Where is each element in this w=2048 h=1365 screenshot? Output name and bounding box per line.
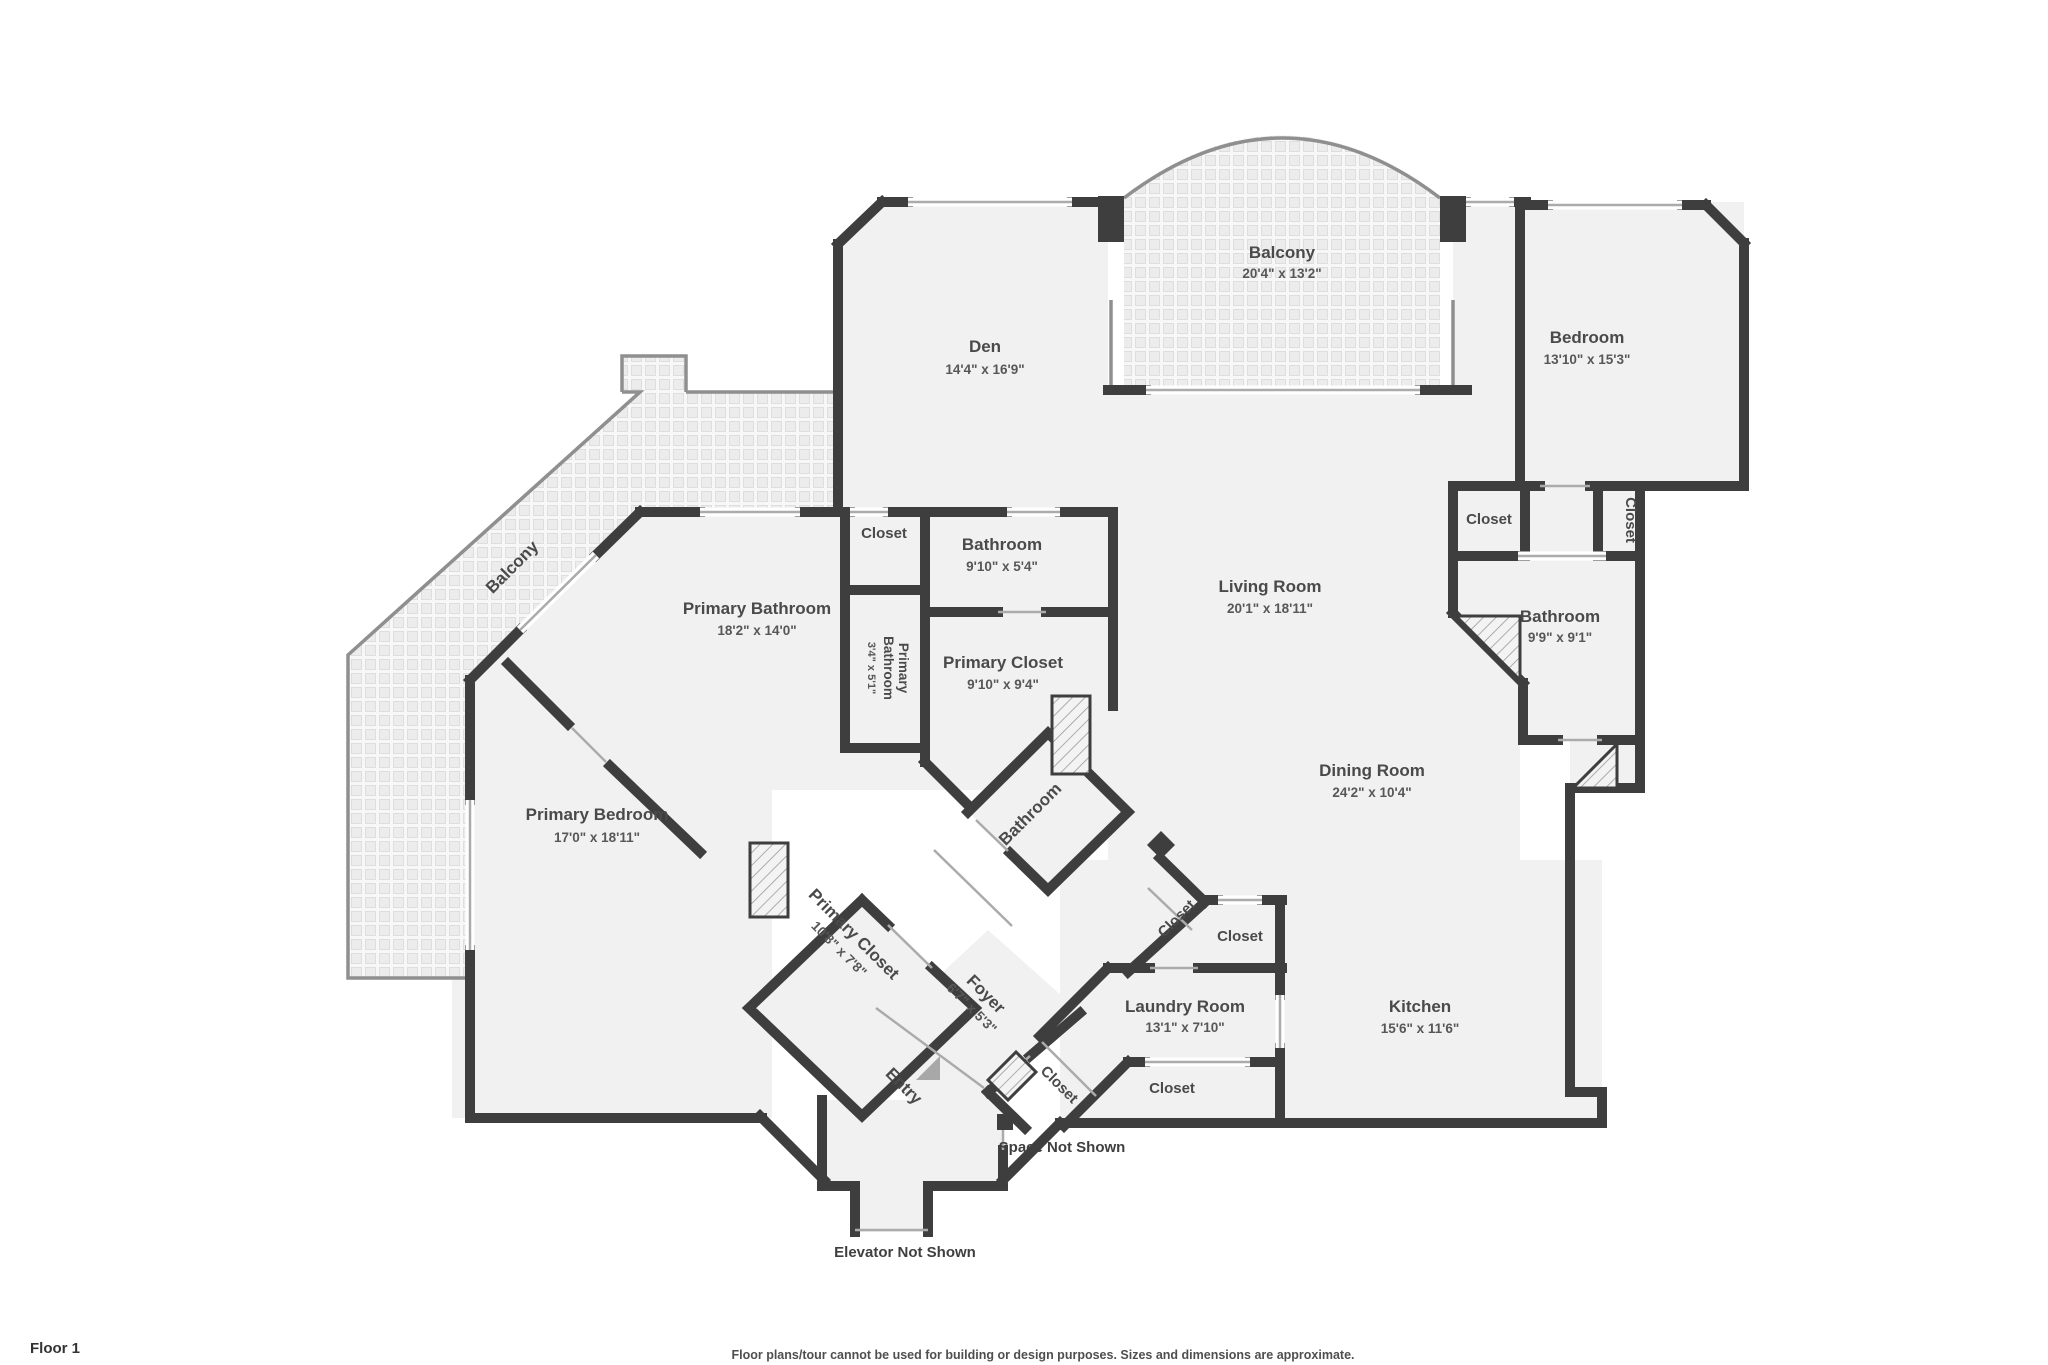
room-label-closet-laundry-n: Closet <box>1217 928 1263 945</box>
room-dims-bathroom-east: 9'9" x 9'1" <box>1528 630 1592 645</box>
note-elevator-not-shown: Elevator Not Shown <box>834 1244 976 1261</box>
room-label-bathroom-hall: Bathroom <box>962 535 1042 554</box>
room-label-living-room: Living Room <box>1219 577 1322 596</box>
svg-text:Closet: Closet <box>1622 497 1639 543</box>
room-label-primary-bedroom: Primary Bedroom <box>526 805 669 824</box>
room-dims-balcony-top: 20'4" x 13'2" <box>1242 266 1321 281</box>
room-dims-bedroom: 13'10" x 15'3" <box>1544 352 1631 367</box>
svg-text:3'4" x 5'1": 3'4" x 5'1" <box>865 642 877 694</box>
room-dims-living-room: 20'1" x 18'11" <box>1227 601 1313 616</box>
room-dims-primary-bathroom: 18'2" x 14'0" <box>717 623 796 638</box>
svg-text:Bathroom: Bathroom <box>881 636 896 700</box>
room-label-primary-bathroom-small: Primary Bathroom 3'4" x 5'1" <box>865 636 911 700</box>
room-dims-kitchen: 15'6" x 11'6" <box>1381 1021 1460 1036</box>
room-label-bedroom: Bedroom <box>1550 328 1625 347</box>
floor-label: Floor 1 <box>30 1340 80 1357</box>
room-dims-den: 14'4" x 16'9" <box>945 362 1024 377</box>
floor-plan-canvas: Balcony 20'4" x 13'2" Den 14'4" x 16'9" … <box>0 0 2048 1365</box>
note-space-not-shown: Space Not Shown <box>999 1139 1126 1156</box>
room-label-laundry-room: Laundry Room <box>1125 997 1245 1016</box>
room-label-closet-bedroom-b: Closet <box>1622 497 1639 543</box>
room-label-dining-room: Dining Room <box>1319 761 1425 780</box>
room-label-bathroom-east: Bathroom <box>1520 607 1600 626</box>
room-label-closet-hall: Closet <box>861 525 907 542</box>
room-label-closet-laundry-s: Closet <box>1149 1080 1195 1097</box>
room-label-balcony-top: Balcony <box>1249 243 1316 262</box>
room-dims-primary-bedroom: 17'0" x 18'11" <box>554 830 640 845</box>
room-dims-dining-room: 24'2" x 10'4" <box>1332 785 1411 800</box>
room-label-primary-closet: Primary Closet <box>943 653 1063 672</box>
room-label-primary-bathroom: Primary Bathroom <box>683 599 831 618</box>
room-dims-bathroom-hall: 9'10" x 5'4" <box>966 559 1038 574</box>
room-label-closet-bedroom-a: Closet <box>1466 511 1512 528</box>
room-dims-primary-closet: 9'10" x 9'4" <box>967 677 1039 692</box>
room-label-kitchen: Kitchen <box>1389 997 1451 1016</box>
disclaimer-text: Floor plans/tour cannot be used for buil… <box>731 1348 1354 1362</box>
room-label-den: Den <box>969 337 1001 356</box>
room-dims-laundry-room: 13'1" x 7'10" <box>1145 1020 1224 1035</box>
svg-text:Primary: Primary <box>896 643 911 694</box>
balcony-top-area <box>1111 136 1453 393</box>
